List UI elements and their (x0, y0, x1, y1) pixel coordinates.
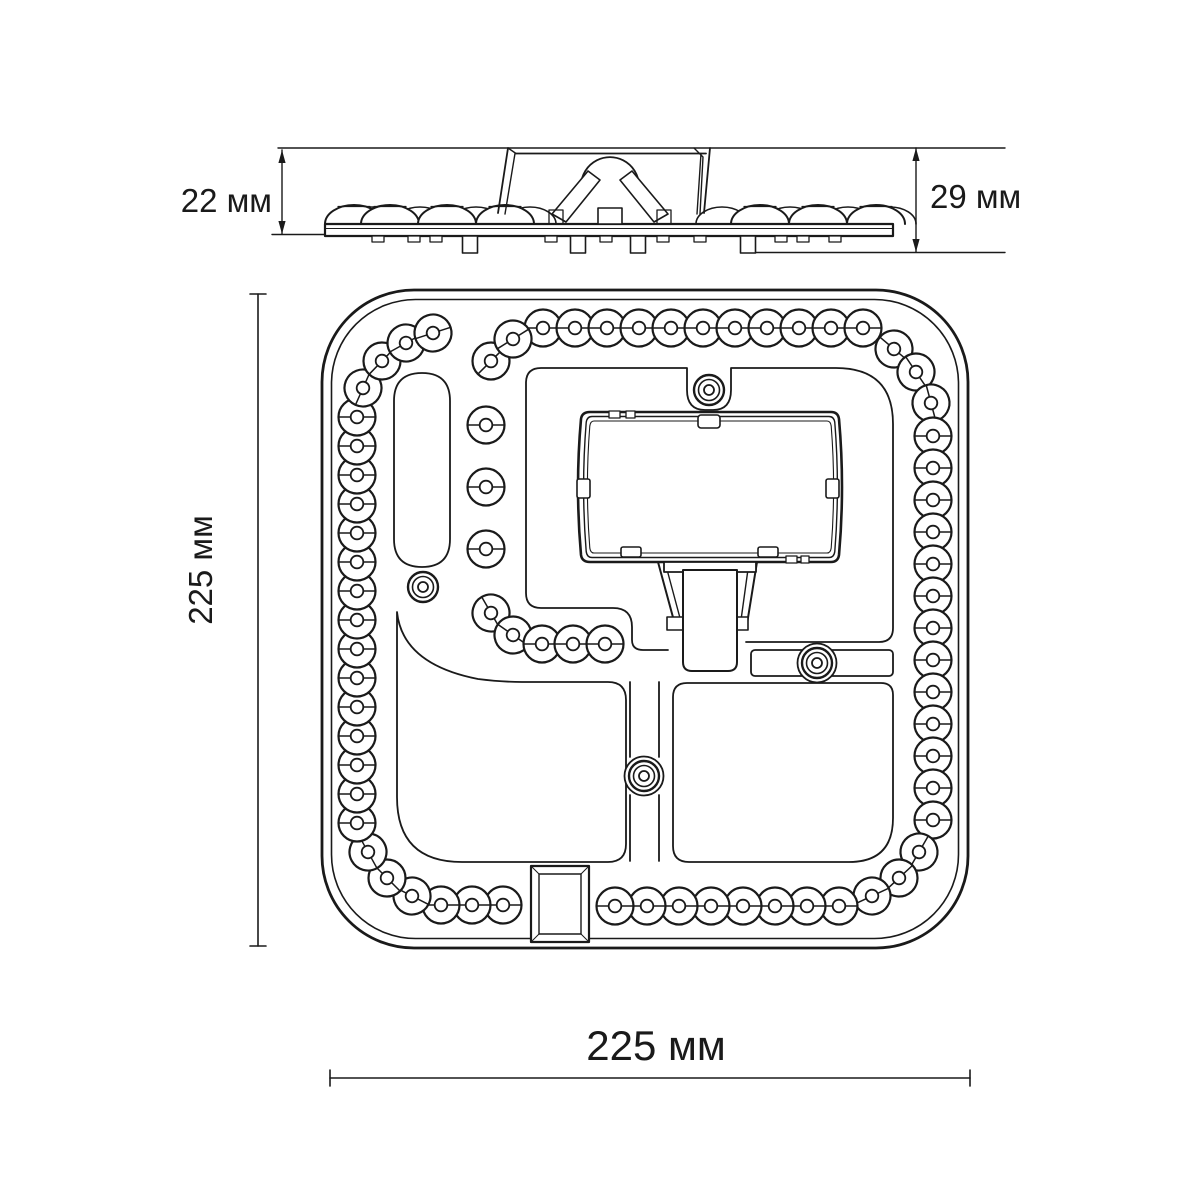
nub (775, 236, 787, 242)
arrow-down-right (912, 239, 919, 252)
led-lens (845, 310, 882, 347)
arrow-down-left (278, 221, 285, 234)
housing-top-tab (698, 415, 720, 428)
pin (631, 236, 646, 253)
pcb-board-side (325, 224, 893, 236)
bracket-stem (683, 570, 737, 671)
screw-hole (798, 644, 837, 683)
nub (694, 236, 706, 242)
screw-hole (694, 375, 724, 405)
housing-side-tab-right (826, 479, 839, 498)
led-lens (468, 531, 505, 568)
led-lens (587, 626, 624, 663)
led-module-drawing: 22 мм 29 мм (0, 0, 1200, 1200)
bottom-connector-opening (531, 866, 589, 942)
mounting-slot (394, 373, 450, 567)
arrow-up-left (278, 150, 285, 163)
nub (372, 236, 384, 242)
led-lens (468, 407, 505, 444)
nub (408, 236, 420, 242)
screw-hole (625, 757, 664, 796)
housing-side-tab-left (577, 479, 590, 498)
nub (430, 236, 442, 242)
pin (571, 236, 586, 253)
label-width-225mm-vertical: 225 мм (182, 515, 219, 625)
arrow-up-right (912, 148, 919, 161)
pin (463, 236, 478, 253)
pin (741, 236, 756, 253)
side-view (272, 148, 1005, 253)
technical-drawing-page: 22 мм 29 мм (0, 0, 1200, 1200)
nub (797, 236, 809, 242)
cradle-center-block (598, 208, 622, 224)
led-lens (597, 888, 634, 925)
housing-bottom-tab-right (758, 547, 778, 557)
top-view (322, 290, 968, 948)
led-lens (468, 469, 505, 506)
screw-hole (408, 572, 438, 602)
driver-housing-side (498, 148, 710, 224)
housing-outline (578, 412, 842, 562)
housing-bottom-tab-left (621, 547, 641, 557)
cradle-left-plate (552, 171, 600, 222)
label-height-29mm: 29 мм (930, 178, 1021, 215)
cradle-right-plate (620, 171, 668, 222)
nub (829, 236, 841, 242)
nub (657, 236, 669, 242)
label-width-225mm-horizontal: 225 мм (586, 1022, 726, 1069)
nub (600, 236, 612, 242)
nub (545, 236, 557, 242)
central-connector-housing (577, 411, 842, 563)
label-height-22mm: 22 мм (181, 182, 272, 219)
